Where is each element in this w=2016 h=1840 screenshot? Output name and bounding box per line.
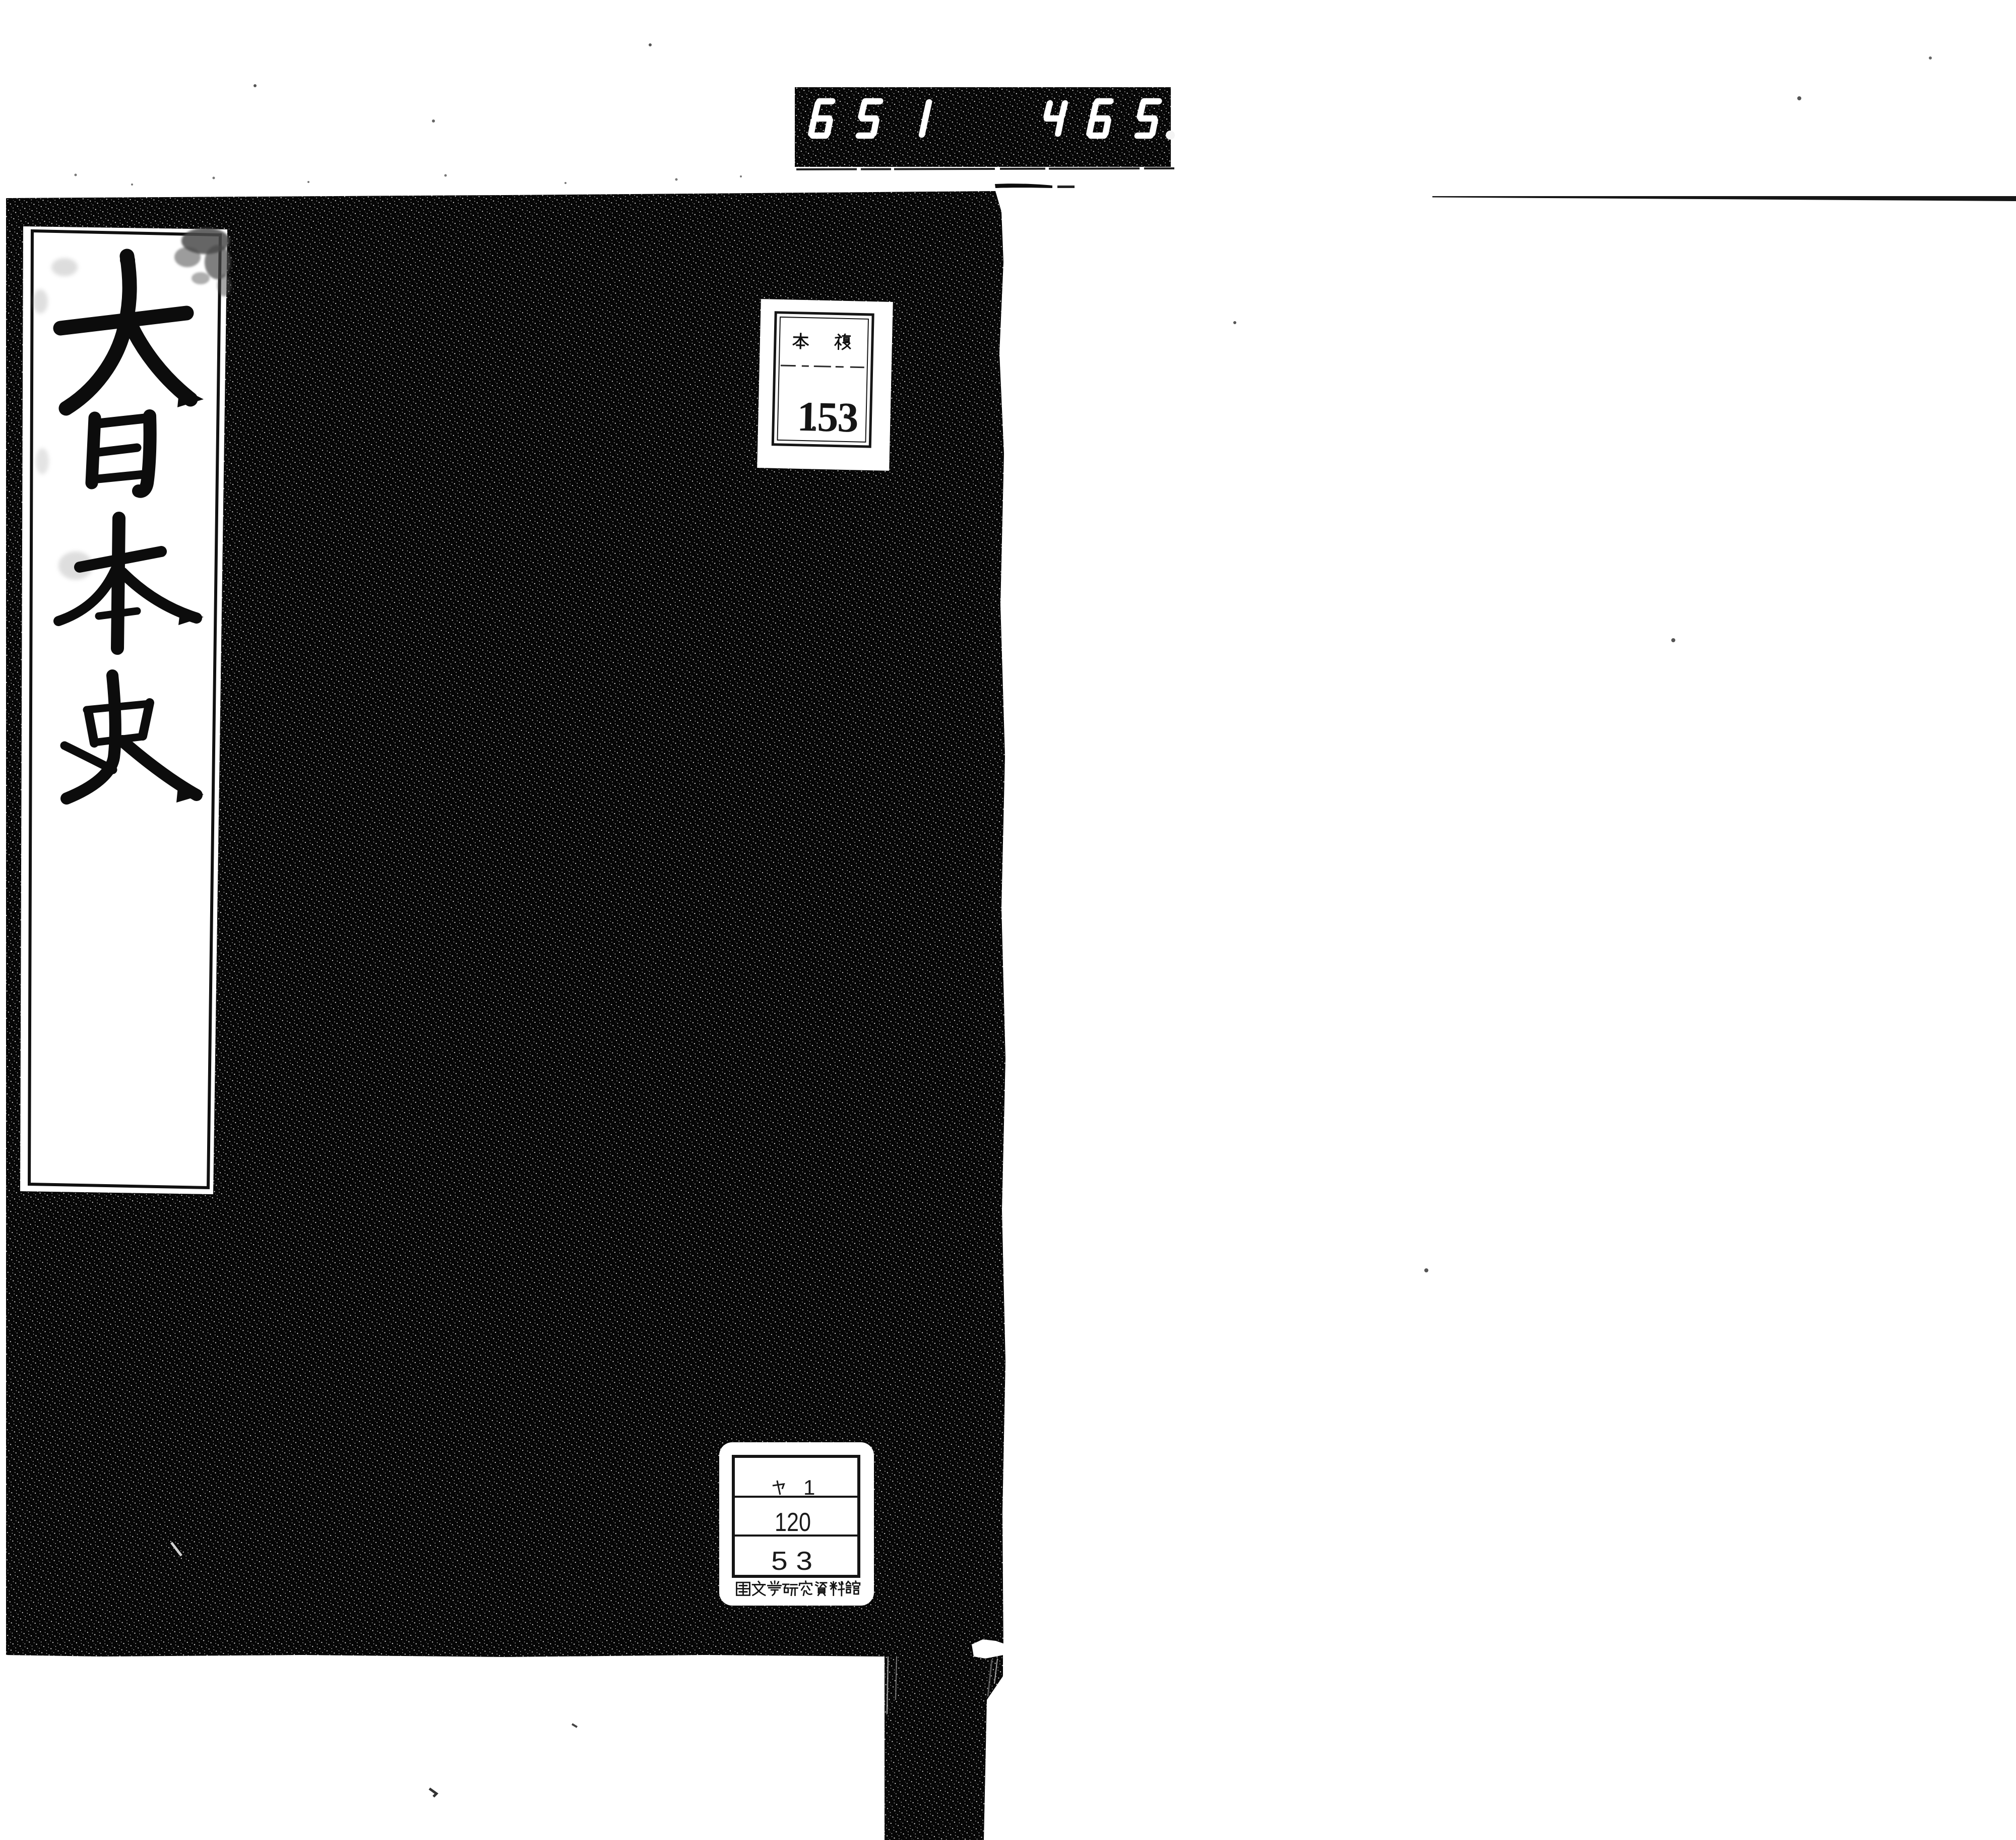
svg-text:5 3: 5 3 [771, 1547, 812, 1576]
svg-text:153: 153 [796, 393, 859, 442]
svg-text:120: 120 [775, 1508, 811, 1537]
svg-text:1: 1 [803, 1476, 815, 1499]
